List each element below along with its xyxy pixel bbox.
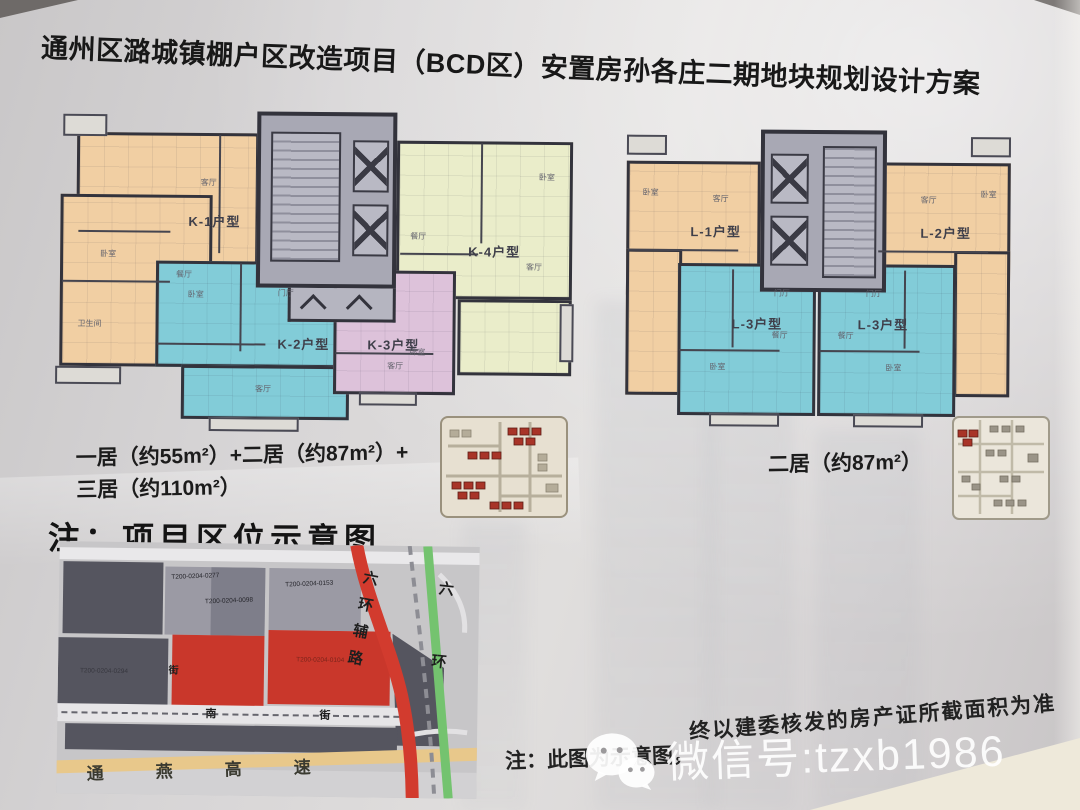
- street-char: 街: [319, 707, 330, 723]
- room-label: 餐厅: [772, 330, 788, 341]
- room-label: 卧室: [188, 289, 204, 300]
- balcony: [209, 417, 299, 432]
- balcony: [63, 114, 107, 136]
- room-label: 卧室: [885, 362, 901, 373]
- unit-label-k4: K-4户型: [468, 241, 520, 260]
- caption-left-line2: 三居（约110m²）: [76, 469, 409, 507]
- parcel-code: T200-0204-0294: [80, 667, 128, 675]
- wechat-icon: [583, 729, 657, 793]
- balcony: [971, 137, 1011, 157]
- room-label: 卧室: [409, 347, 425, 358]
- room-label: 卧室: [709, 361, 725, 372]
- poster-photo: 通州区潞城镇棚户区改造项目（BCD区）安置房孙各庄二期地块规划设计方案: [0, 0, 1080, 810]
- room-label: 客厅: [921, 195, 937, 206]
- site-key-plan-left: [438, 414, 570, 520]
- stairs: [270, 132, 341, 263]
- unit-l2-wing: [953, 251, 1010, 397]
- room-label: 客厅: [201, 177, 217, 188]
- floor-plan-k-building: K-1户型 K-2户型 K-3户型 K-4户型 卧室 客厅 餐厅 卫生间 餐厅 …: [59, 110, 580, 439]
- room-label: 卫生间: [78, 318, 102, 329]
- street-char: 街: [164, 665, 179, 675]
- room-label: 餐厅: [176, 269, 192, 280]
- unit-k4-lower: [457, 299, 572, 376]
- unit-label-k2: K-2户型: [277, 334, 329, 353]
- room-label: 客厅: [387, 361, 403, 372]
- photo-corner: [0, 0, 78, 18]
- wechat-id-text: 微信号:tzxb1986: [665, 717, 1006, 791]
- room-label: 餐厅: [410, 231, 426, 242]
- elevator-icon: [771, 154, 809, 204]
- room-label: 卧室: [643, 187, 659, 198]
- room-label: 门厅: [866, 288, 882, 299]
- caption-right: 二居（约87m²）: [768, 447, 923, 482]
- unit-label-l2: L-2户型: [920, 223, 971, 242]
- balcony: [709, 413, 779, 426]
- room-label: 门厅: [774, 288, 790, 299]
- room-label: 卧室: [539, 172, 555, 183]
- balcony: [55, 366, 121, 385]
- location-map: T200-0204-0277 T200-0204-0098 T200-0204-…: [56, 541, 479, 799]
- stairs: [822, 146, 877, 278]
- room-label: 门厅: [278, 288, 294, 299]
- floor-plan-l-building: L-1户型 L-2户型 L-3户型 L-3户型 卧室 客厅 客厅 卧室 卧室 卧…: [623, 129, 1013, 438]
- unit-label-l1: L-1户型: [690, 221, 741, 240]
- room-label: 客厅: [255, 383, 271, 394]
- caption-left-line1: 一居（约55m²）+二居（约87m²）+: [75, 437, 408, 475]
- room-label: 客厅: [713, 193, 729, 204]
- parcel-code: T200-0204-0104: [296, 656, 344, 664]
- elevator-icon: [352, 204, 388, 256]
- unit-label-k1: K-1户型: [188, 211, 240, 230]
- caption-left: 一居（约55m²）+二居（约87m²）+ 三居（约110m²）: [75, 437, 409, 507]
- balcony: [559, 304, 574, 362]
- unit-label-l3: L-3户型: [858, 314, 909, 333]
- street-char: 南: [205, 705, 216, 721]
- balcony: [627, 135, 667, 155]
- room-label: 客厅: [526, 262, 542, 273]
- room-label: 卧室: [100, 248, 116, 259]
- site-key-plan-right: [950, 414, 1052, 522]
- unit-l1-wing: [625, 249, 682, 395]
- room-label: 餐厅: [838, 330, 854, 341]
- elevator-icon: [770, 216, 808, 266]
- balcony: [359, 392, 417, 406]
- photo-edge-highlight: [1054, 0, 1080, 810]
- poster-title: 通州区潞城镇棚户区改造项目（BCD区）安置房孙各庄二期地块规划设计方案: [41, 26, 1062, 104]
- balcony: [853, 414, 923, 427]
- elevator-icon: [353, 140, 389, 192]
- room-label: 卧室: [981, 189, 997, 200]
